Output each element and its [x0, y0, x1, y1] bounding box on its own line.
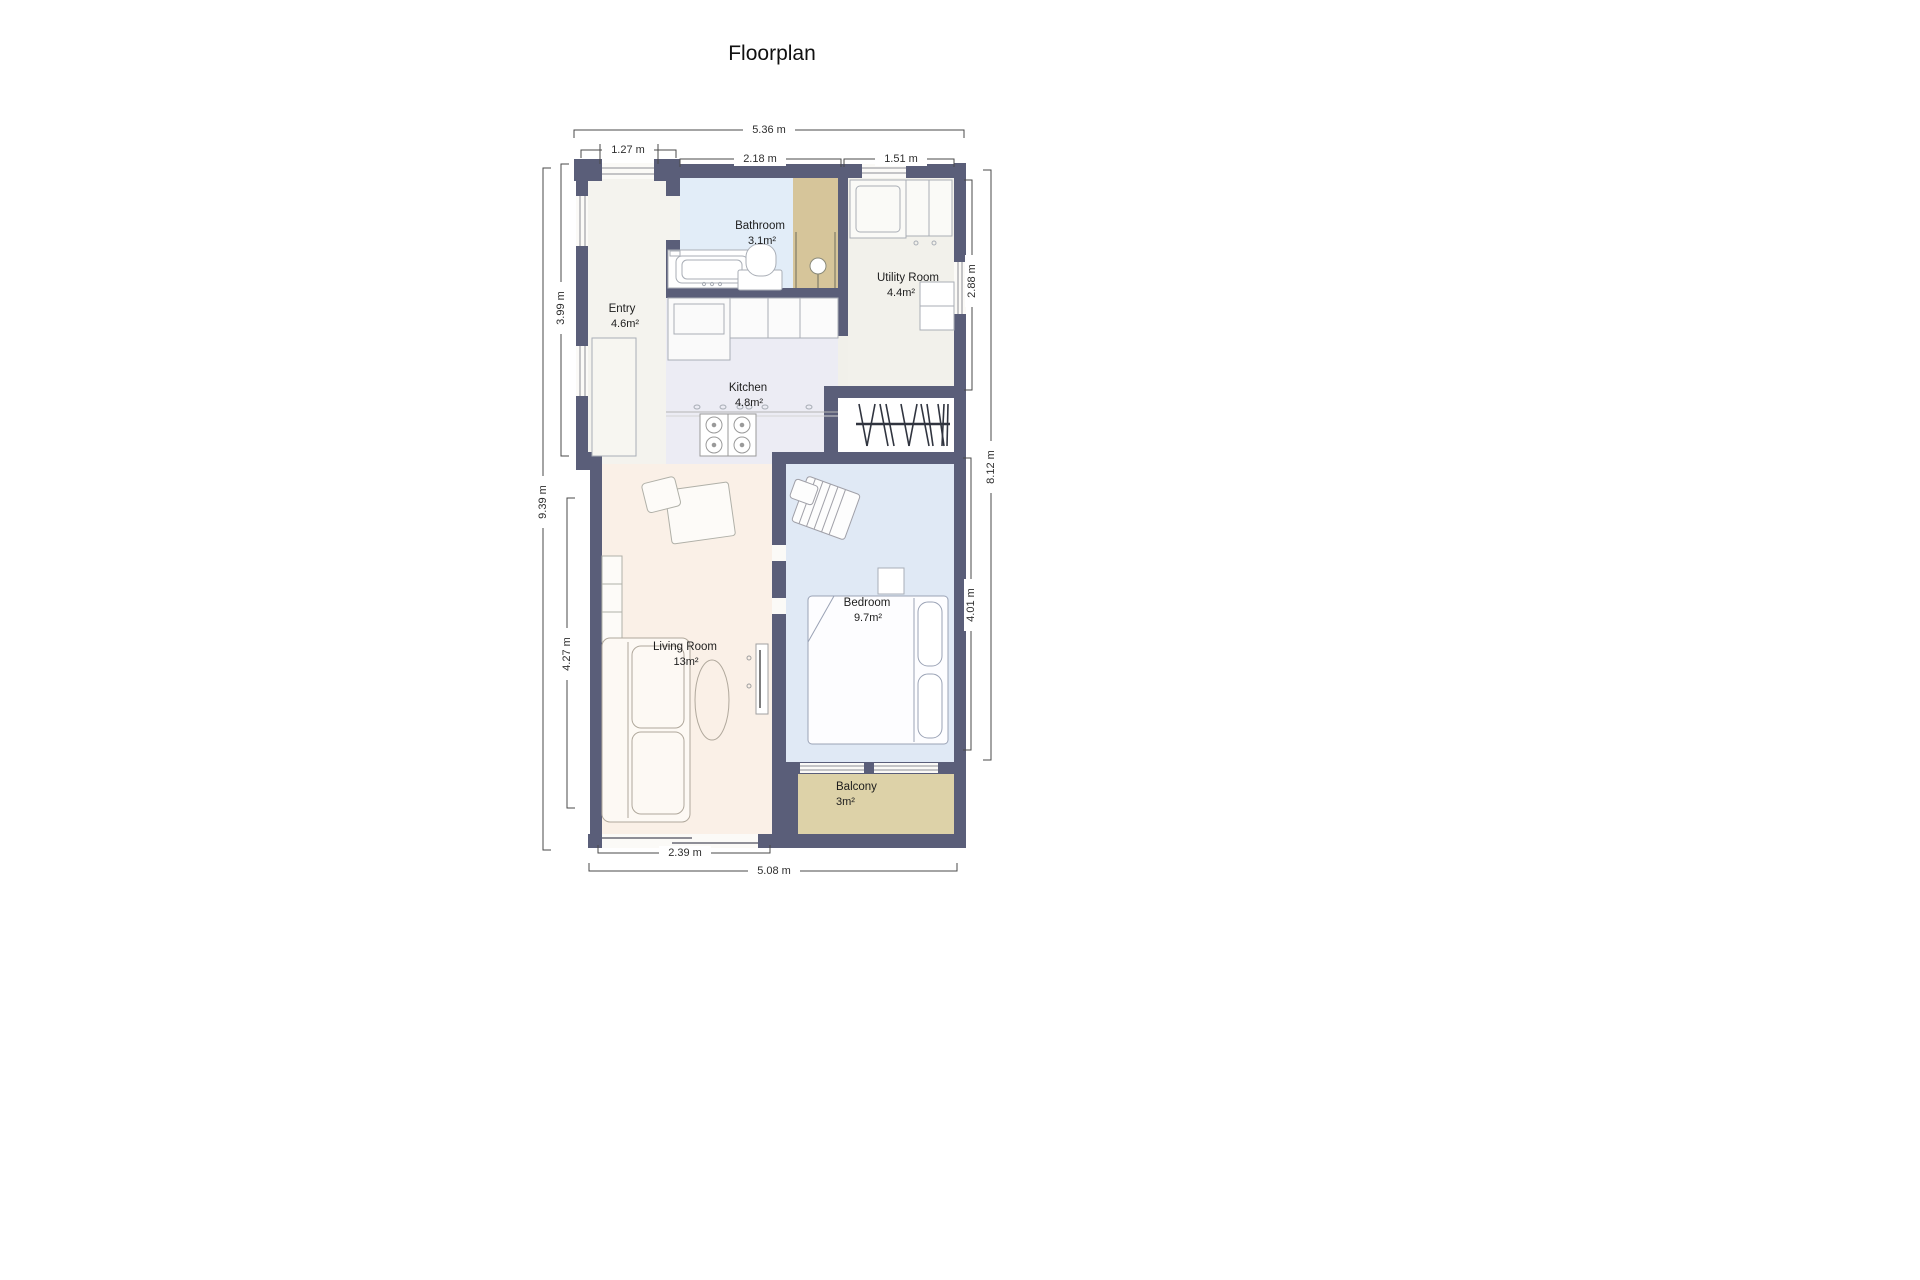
dim-label-top-entry: 1.27 m	[611, 144, 645, 156]
balcony-door-2	[874, 763, 938, 773]
entry-cabinet-icon	[592, 338, 636, 456]
bedroom-label: Bedroom	[844, 597, 891, 609]
wall-utility-closet	[838, 386, 966, 398]
page-title: Floorplan	[728, 42, 816, 65]
entry-label: Entry	[609, 303, 636, 315]
bedroom-door-opening-2	[772, 598, 786, 614]
utility-label: Utility Room	[877, 272, 939, 284]
wall-bedroom-top	[772, 452, 964, 464]
balcony-label: Balcony	[836, 781, 877, 793]
wall-left-living	[590, 460, 602, 848]
dim-label-left-total: 9.39 m	[537, 485, 549, 519]
floorplan-page: Floorplan	[0, 0, 1920, 1280]
dim-label-bottom-total: 5.08 m	[757, 865, 791, 877]
dim-label-left-living: 4.27 m	[561, 637, 573, 671]
dim-label-top-utility: 1.51 m	[884, 153, 918, 165]
entry-area: 4.6m²	[611, 318, 639, 330]
stove-icon	[700, 414, 756, 456]
bedroom-door-opening-1	[772, 545, 786, 561]
utility-top-window	[862, 164, 906, 178]
balcony-area: 3m²	[836, 796, 855, 808]
wall-living-bedroom	[772, 452, 786, 834]
entry-top-window	[602, 163, 654, 179]
utility-shelf-icon	[920, 282, 954, 330]
kitchen-label: Kitchen	[729, 382, 767, 394]
entry-left-window-2	[576, 346, 588, 396]
dim-label-right-total: 8.12 m	[985, 450, 997, 484]
dim-label-right-bedroom: 4.01 m	[965, 588, 977, 622]
living-area: 13m²	[673, 656, 698, 668]
dim-label-left-entry: 3.99 m	[555, 291, 567, 325]
bedroom-area: 9.7m²	[854, 612, 882, 624]
sideboard-icon	[602, 556, 622, 642]
utility-right-window	[954, 262, 966, 314]
dim-label-top-bathroom: 2.18 m	[743, 153, 777, 165]
dryer-icon	[906, 180, 952, 245]
floorplan-canvas: Floorplan	[0, 0, 1920, 1280]
dim-label-top-total: 5.36 m	[752, 124, 786, 136]
balcony-door-1	[800, 763, 864, 773]
shower-head-icon	[810, 258, 826, 274]
bathroom-area: 3.1m²	[748, 235, 776, 247]
entry-left-window-1	[576, 196, 588, 246]
wall-bathroom-utility	[838, 178, 848, 288]
wall-balcony-left	[786, 762, 798, 837]
living-label: Living Room	[653, 641, 717, 653]
bathroom-label: Bathroom	[735, 220, 785, 232]
wall-top-main	[680, 164, 964, 178]
utility-door-opening	[838, 336, 848, 386]
bathroom-door-opening	[666, 196, 680, 240]
washer-icon	[850, 180, 906, 238]
living-terrace-door	[602, 834, 758, 848]
utility-area: 4.4m²	[887, 287, 915, 299]
kitchen-area: 4.8m²	[735, 397, 763, 409]
dim-label-right-utility: 2.88 m	[966, 264, 978, 298]
nightstand-icon	[878, 568, 904, 594]
dim-label-bottom-living: 2.39 m	[668, 847, 702, 859]
